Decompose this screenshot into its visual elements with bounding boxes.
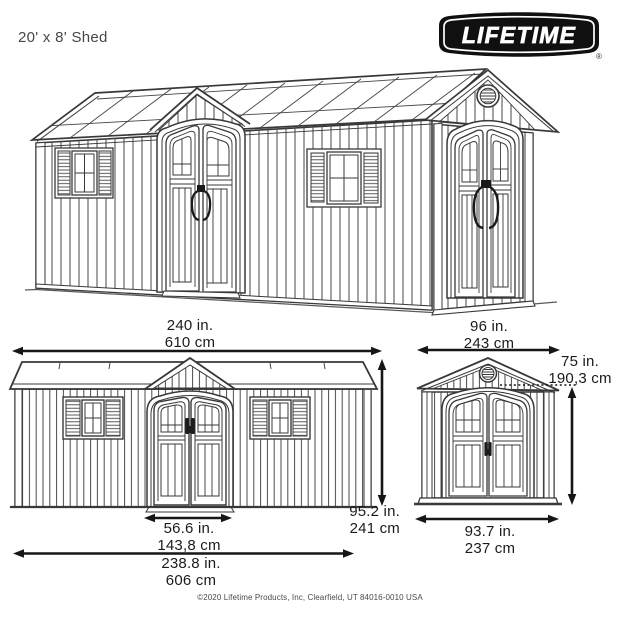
- shutter-left: [58, 151, 70, 195]
- shutter-right: [293, 400, 307, 436]
- dim-door-height-in: 75 in.: [537, 353, 620, 370]
- double-doors-3d-front: [157, 119, 245, 298]
- dim-door-height-cm: 190,3 cm: [537, 370, 620, 387]
- shutter-left: [311, 153, 324, 202]
- front-window-left: [63, 397, 123, 439]
- shed-3d-drawing: [15, 60, 560, 318]
- side-base: [414, 498, 562, 504]
- dim-side-base-width-cm: 237 cm: [432, 540, 548, 557]
- door-leaf-right: [489, 393, 527, 496]
- dim-front-width-in: 240 in.: [132, 317, 248, 334]
- window-3d-left: [55, 148, 113, 198]
- dim-base-width-cm: 606 cm: [133, 572, 249, 589]
- front-elevation-drawing: [8, 356, 388, 514]
- dim-side-base-width-in: 93.7 in.: [432, 523, 548, 540]
- gable-end-3d: [425, 70, 558, 315]
- front-window-right: [250, 397, 310, 439]
- shed-dimension-diagram: 20' x 8' Shed LIFETIME ®: [0, 0, 620, 620]
- dim-label-side-width: 96 in. 243 cm: [431, 318, 547, 352]
- lifetime-logo-badge: LIFETIME ®: [436, 12, 602, 62]
- dim-base-width-in: 238.8 in.: [133, 555, 249, 572]
- dim-side-width-cm: 243 cm: [431, 335, 547, 352]
- shutter-left: [253, 400, 267, 436]
- door-leaf-right: [191, 397, 226, 505]
- dim-label-front-width: 240 in. 610 cm: [132, 317, 248, 351]
- door-leaf-left: [166, 126, 199, 291]
- gable-vent-icon: [477, 85, 499, 107]
- logo-wordmark: LIFETIME: [462, 22, 576, 48]
- page-title: 20' x 8' Shed: [18, 29, 108, 46]
- front-double-doors: [146, 391, 234, 512]
- dim-label-base-width: 238.8 in. 606 cm: [133, 555, 249, 589]
- door-leaf-left: [455, 130, 483, 297]
- lifetime-logo: LIFETIME ®: [436, 12, 602, 62]
- dim-arrow-side-base-width: [415, 515, 559, 524]
- dim-label-door-width: 56.6 in. 143,8 cm: [131, 520, 247, 554]
- dim-arrow-door-height: [568, 387, 577, 505]
- dim-side-width-in: 96 in.: [431, 318, 547, 335]
- door-leaf-left: [449, 393, 487, 496]
- dim-door-width-in: 56.6 in.: [131, 520, 247, 537]
- dim-wall-height-cm: 241 cm: [318, 520, 400, 537]
- dim-label-side-base-width: 93.7 in. 237 cm: [432, 523, 548, 557]
- shutter-left: [66, 400, 80, 436]
- dim-label-wall-height: 95.2 in. 241 cm: [318, 503, 400, 537]
- shutter-right: [364, 153, 378, 203]
- dim-label-door-height: 75 in. 190,3 cm: [537, 353, 620, 387]
- dim-wall-height-in: 95.2 in.: [318, 503, 400, 520]
- dim-door-width-cm: 143,8 cm: [131, 537, 247, 554]
- gable-vent-icon: [480, 365, 497, 382]
- double-doors-3d-end: [447, 121, 523, 298]
- shutter-right: [106, 400, 120, 436]
- registered-mark: ®: [596, 52, 602, 61]
- side-double-doors: [442, 388, 534, 498]
- copyright-text: ©2020 Lifetime Products, Inc, Clearfield…: [150, 593, 470, 602]
- dim-front-width-cm: 610 cm: [132, 334, 248, 351]
- door-leaf-right: [203, 125, 236, 292]
- door-leaf-left: [154, 397, 189, 505]
- door-leaf-right: [487, 130, 515, 297]
- window-3d-right: [307, 149, 381, 207]
- shutter-right: [99, 151, 111, 195]
